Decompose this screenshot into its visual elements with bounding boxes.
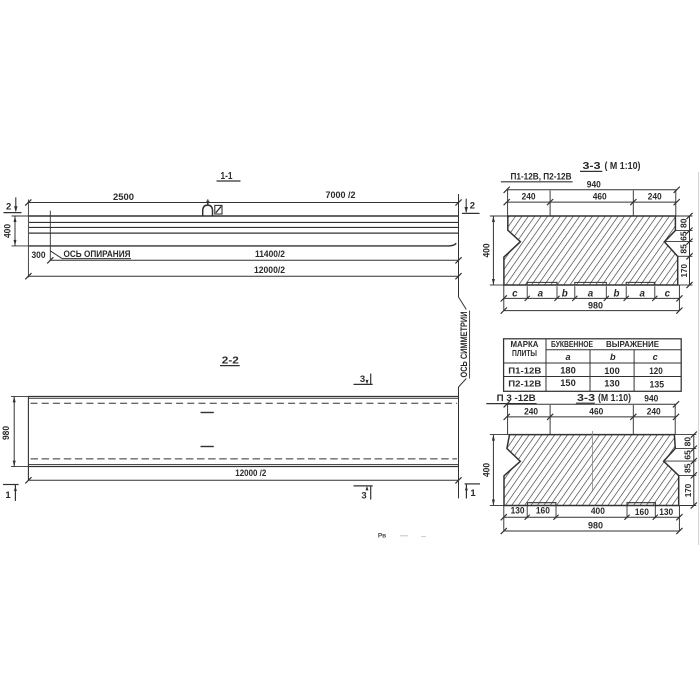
svg-text:ОСЬ СИММЕТРИИ: ОСЬ СИММЕТРИИ [459,312,469,378]
svg-text:П1-12В, П2-12В: П1-12В, П2-12В [511,172,572,183]
svg-text:135: 135 [650,380,665,390]
svg-text:2-2: 2-2 [222,354,239,366]
svg-text:7000 /2: 7000 /2 [326,190,356,201]
svg-text:240: 240 [647,406,661,416]
svg-text:11400/2: 11400/2 [255,249,285,260]
svg-text:400: 400 [2,224,12,238]
svg-text:П1-12В: П1-12В [508,366,541,376]
svg-text:80: 80 [683,437,693,447]
svg-text:П 3 -12В: П 3 -12В [497,393,536,404]
svg-text:b: b [610,352,616,362]
svg-text:80: 80 [679,218,689,228]
svg-text:150: 150 [560,378,576,388]
svg-text:300: 300 [32,250,46,261]
svg-text:3: 3 [360,374,365,385]
svg-text:100: 100 [604,366,620,376]
svg-text:МАРКА: МАРКА [511,340,539,349]
svg-text:12000 /2: 12000 /2 [235,468,266,479]
svg-text:Рв: Рв [378,533,386,540]
svg-text:130: 130 [604,379,620,389]
svg-text:ПЛИТЫ: ПЛИТЫ [512,349,537,358]
svg-text:a: a [538,288,544,299]
svg-text:2: 2 [6,201,11,212]
svg-text:940: 940 [587,180,601,190]
svg-text:160: 160 [635,507,649,517]
svg-text:(М 1:10): (М 1:10) [598,393,631,404]
svg-text:12000/2: 12000/2 [254,265,285,276]
svg-text:85: 85 [679,244,689,254]
svg-text:160: 160 [536,506,550,516]
svg-text:1: 1 [470,488,476,499]
svg-text:980: 980 [1,426,11,440]
svg-text:460: 460 [589,406,603,416]
svg-text:180: 180 [560,366,576,376]
svg-text:65: 65 [683,450,693,460]
svg-text:980: 980 [588,301,603,311]
svg-text:240: 240 [648,192,662,202]
svg-text:240: 240 [522,192,536,202]
svg-text:170: 170 [683,484,693,498]
svg-text:170: 170 [679,264,689,278]
svg-text:a: a [588,288,594,299]
svg-text:ВЫРАЖЕНИЕ: ВЫРАЖЕНИЕ [606,340,660,349]
svg-text:130: 130 [511,506,525,516]
svg-text:65: 65 [679,231,689,241]
svg-text:( М 1:10): ( М 1:10) [605,161,641,172]
svg-text:120: 120 [649,366,663,376]
svg-text:БУКВЕННОЕ: БУКВЕННОЕ [551,340,593,349]
svg-text:c: c [653,352,658,362]
svg-text:3-3: 3-3 [577,393,596,404]
svg-text:400: 400 [481,463,491,477]
svg-text:b: b [562,288,568,299]
svg-text:130: 130 [659,507,673,517]
svg-text:П2-12В: П2-12В [508,379,541,389]
svg-text:940: 940 [644,394,658,404]
svg-text:ОСЬ ОПИРАНИЯ: ОСЬ ОПИРАНИЯ [64,249,131,259]
svg-text:460: 460 [593,192,607,202]
svg-text:400: 400 [591,506,605,516]
svg-text:1: 1 [5,490,11,501]
svg-text:85: 85 [683,463,693,473]
svg-text:1-1: 1-1 [221,170,233,182]
svg-text:c: c [665,288,671,299]
svg-text:240: 240 [524,406,538,416]
svg-text:400: 400 [481,244,491,258]
svg-text:980: 980 [588,520,603,530]
svg-text:a: a [565,352,570,362]
svg-text:3-3: 3-3 [583,161,602,172]
svg-text:3: 3 [361,491,366,502]
svg-text:2: 2 [470,200,475,211]
svg-text:a: a [639,288,645,299]
svg-text:b: b [614,288,620,299]
svg-text:c: c [512,288,518,299]
svg-text:2500: 2500 [113,192,134,203]
